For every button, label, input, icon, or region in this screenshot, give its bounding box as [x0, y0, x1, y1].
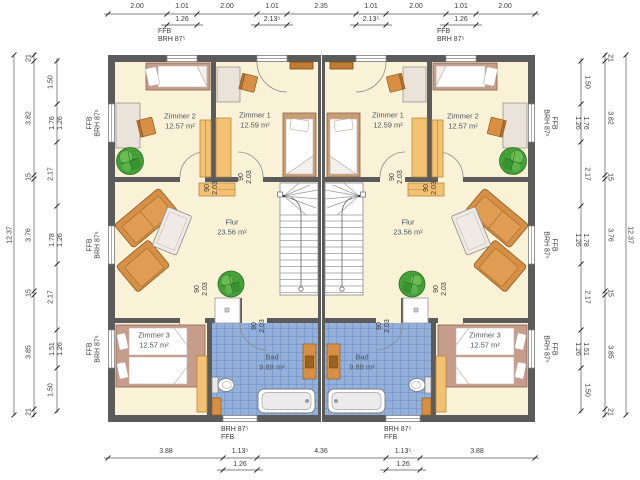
dim-left-in-4: 1.781.26: [49, 233, 65, 247]
dim-right-in-2: 1.761.26: [573, 116, 589, 130]
room-name: Zimmer 2: [164, 111, 196, 121]
dim-left-mid-4: 3.76: [26, 228, 33, 242]
room-label-zimmer1-left: Zimmer 112.59 m²: [239, 110, 271, 130]
toilet-left: [212, 377, 234, 393]
window-right-2: [529, 226, 535, 264]
staircase-left: [278, 183, 319, 295]
dim-top-7: 2.00: [409, 3, 423, 10]
dim-top-sub-2: 2.13⁵: [264, 16, 281, 23]
plant-flur-right: [399, 271, 425, 297]
window-right-3: [529, 330, 535, 368]
door-dim-zimmer3-left: 902.03: [194, 282, 210, 296]
door-dim-zimmer1-left: 902.03: [238, 170, 254, 184]
dim-left-in-7: 1.50: [48, 383, 55, 397]
dim-bottom-5: 3.88: [470, 448, 484, 455]
room-area: 12.59 m²: [372, 120, 404, 130]
window-label-right-2: FFBBRH 87⁵: [541, 231, 558, 258]
bed-zimmer2-right: [433, 63, 498, 90]
window-label-bottom-right: BRH 87⁵FFB: [384, 426, 411, 443]
wardrobe-zimmer1-left: [216, 118, 231, 177]
dim-right-in-1: 1.50: [584, 75, 591, 89]
bathtub-right: [328, 389, 385, 413]
room-area: 12.57 m²: [469, 340, 501, 350]
dim-top-5: 2.35: [314, 3, 328, 10]
room-name: Flur: [393, 217, 423, 227]
dim-right-in-3: 2.17: [584, 167, 591, 181]
dim-left-mid-5: 15: [26, 289, 33, 297]
dim-left-mid-1: 21: [26, 54, 33, 62]
dim-left-in-1: 1.50: [48, 75, 55, 89]
dim-left-in-2: 1.761.26: [49, 116, 65, 130]
shelf-zimmer1-left: [290, 62, 313, 69]
room-label-flur-left: Flur23.56 m²: [217, 217, 247, 237]
dim-left-total: 12.37: [7, 226, 14, 244]
room-area: 23.56 m²: [217, 227, 247, 237]
room-area: 9.88 m²: [349, 362, 374, 372]
room-name: Bad: [349, 352, 374, 362]
dim-top-sub-4: 1.26: [454, 16, 468, 23]
room-name: Zimmer 3: [138, 330, 170, 340]
stair-hub-left: [283, 195, 286, 198]
dim-bottom-1: 3.88: [159, 448, 173, 455]
door-dim-bad-left: 902.03: [251, 319, 267, 333]
dim-bottom-3: 4.36: [314, 448, 328, 455]
room-area: 12.57 m²: [164, 121, 196, 131]
dim-top-2: 1.01: [175, 3, 189, 10]
dim-right-total: 12.37: [627, 226, 634, 244]
dim-right-mid-1: 21: [607, 54, 614, 62]
room-area: 23.56 m²: [393, 227, 423, 237]
french-door-top-left: [257, 56, 287, 62]
dim-top-8: 1.01: [454, 3, 468, 10]
top-sub-dim-lines: [161, 23, 482, 28]
shelf-zimmer1-right: [330, 62, 353, 69]
plant-flur-left: [218, 271, 244, 297]
dim-left-in-3: 2.17: [48, 167, 55, 181]
window-label-right-1: FFBBRH 87⁵: [541, 109, 558, 136]
room-label-zimmer1-right: Zimmer 112.59 m²: [372, 110, 404, 130]
window-left-1: [109, 104, 115, 142]
dim-top-sub-3: 2.13⁵: [363, 16, 380, 23]
window-label-top-left: FFBBRH 87⁵: [158, 28, 185, 45]
room-area: 12.57 m²: [138, 340, 170, 350]
floor-plan-page: { "plan": { "rooms": { "zimmer2_left": {…: [0, 0, 640, 480]
dim-top-4: 1.01: [265, 3, 279, 10]
dim-bottom-2: 1.13⁵: [232, 448, 249, 455]
dim-right-in-4: 1.781.26: [573, 233, 589, 247]
french-door-top-right: [356, 56, 386, 62]
room-name: Zimmer 2: [447, 111, 479, 121]
room-label-bad-right: Bad9.88 m²: [349, 352, 374, 372]
dim-right-in-7: 1.50: [584, 383, 591, 397]
bath-cabinet-right: [422, 398, 431, 415]
room-area: 9.88 m²: [259, 362, 284, 372]
door-dim-zimmer2-right: 902.03: [423, 181, 439, 195]
window-label-top-right: FFBBRH 87⁵: [437, 28, 464, 45]
door-dim-zimmer2-left: 902.03: [204, 181, 220, 195]
room-label-zimmer3-left: Zimmer 312.57 m²: [138, 330, 170, 350]
room-name: Flur: [217, 217, 247, 227]
dim-top-6: 1.01: [364, 3, 378, 10]
room-name: Zimmer 1: [372, 110, 404, 120]
vanity-left: [303, 344, 316, 379]
staircase-right: [325, 183, 366, 295]
dim-top-1: 2.00: [130, 3, 144, 10]
door-dim-zimmer1-right: 902.03: [389, 170, 405, 184]
room-name: Zimmer 1: [239, 110, 271, 120]
dim-right-mid-2: 3.82: [607, 111, 614, 125]
door-dim-zimmer3-right: 902.03: [433, 282, 449, 296]
door-dim-bad-right: 902.03: [376, 319, 392, 333]
room-label-flur-right: Flur23.56 m²: [393, 217, 423, 237]
dim-bottom-sub-2: 1.26: [396, 461, 410, 468]
window-left-2: [109, 226, 115, 264]
dim-top-sub-1: 1.26: [175, 16, 189, 23]
room-area: 12.59 m²: [239, 120, 271, 130]
dim-bottom-4: 1.13⁵: [395, 448, 412, 455]
room-name: Zimmer 3: [469, 330, 501, 340]
dim-right-mid-7: 21: [607, 408, 614, 416]
dim-left-mid-2: 3.82: [26, 111, 33, 125]
dim-right-mid-3: 15: [607, 173, 614, 181]
window-left-3: [109, 330, 115, 368]
bed-zimmer2-left: [145, 63, 210, 90]
room-label-bad-left: Bad9.88 m²: [259, 352, 284, 372]
bed-zimmer1-left: [283, 113, 316, 177]
wardrobe-zimmer1-right: [412, 118, 427, 177]
dim-right-in-5: 2.17: [584, 290, 591, 304]
room-label-zimmer2-left: Zimmer 212.57 m²: [164, 111, 196, 131]
window-bottom-right: [386, 416, 420, 422]
desk-zimmer2-right: [503, 103, 527, 148]
plant-zimmer2-left: [117, 148, 144, 175]
dim-right-in-6: 1.511.26: [573, 342, 589, 356]
window-right-1: [529, 104, 535, 142]
dim-right-mid-5: 15: [607, 289, 614, 297]
toilet-right: [409, 377, 431, 393]
bed-zimmer1-right: [327, 113, 360, 177]
window-bottom-left: [223, 416, 257, 422]
desk-zimmer2-left: [116, 103, 140, 148]
dim-left-mid-6: 3.85: [26, 345, 33, 359]
desk-zimmer1-right: [403, 67, 426, 102]
window-top-left: [167, 56, 197, 62]
wardrobe-zimmer3-right: [436, 356, 446, 412]
desk-zimmer1-left: [217, 67, 240, 102]
window-label-left-3: FFBBRH 87⁵: [87, 335, 104, 362]
stair-hub-right: [358, 195, 361, 198]
dim-left-mid-3: 15: [26, 173, 33, 181]
room-label-zimmer2-right: Zimmer 212.57 m²: [447, 111, 479, 131]
window-label-right-3: FFBBRH 87⁵: [541, 335, 558, 362]
bottom-sub-dim-lines: [217, 468, 426, 473]
dim-left-mid-7: 21: [26, 408, 33, 416]
bath-cabinet-left: [212, 398, 221, 415]
window-label-bottom-left: BRH 87⁵FFB: [221, 426, 248, 443]
dim-bottom-sub-1: 1.26: [233, 461, 247, 468]
bathtub-left: [258, 389, 315, 413]
wardrobe-zimmer3-left: [197, 356, 207, 412]
dim-left-in-5: 2.17: [48, 290, 55, 304]
room-label-zimmer3-right: Zimmer 312.57 m²: [469, 330, 501, 350]
vanity-right: [327, 344, 340, 379]
plant-zimmer2-right: [500, 148, 527, 175]
room-name: Bad: [259, 352, 284, 362]
dim-right-mid-6: 3.85: [607, 345, 614, 359]
dim-left-in-6: 1.511.26: [49, 342, 65, 356]
dim-top-9: 2.00: [498, 3, 512, 10]
dim-top-3: 2.00: [220, 3, 234, 10]
window-top-right: [446, 56, 476, 62]
window-label-left-2: FFBBRH 87⁵: [87, 231, 104, 258]
room-area: 12.57 m²: [447, 121, 479, 131]
window-label-left-1: FFBBRH 87⁵: [87, 109, 104, 136]
dim-right-mid-4: 3.76: [607, 228, 614, 242]
